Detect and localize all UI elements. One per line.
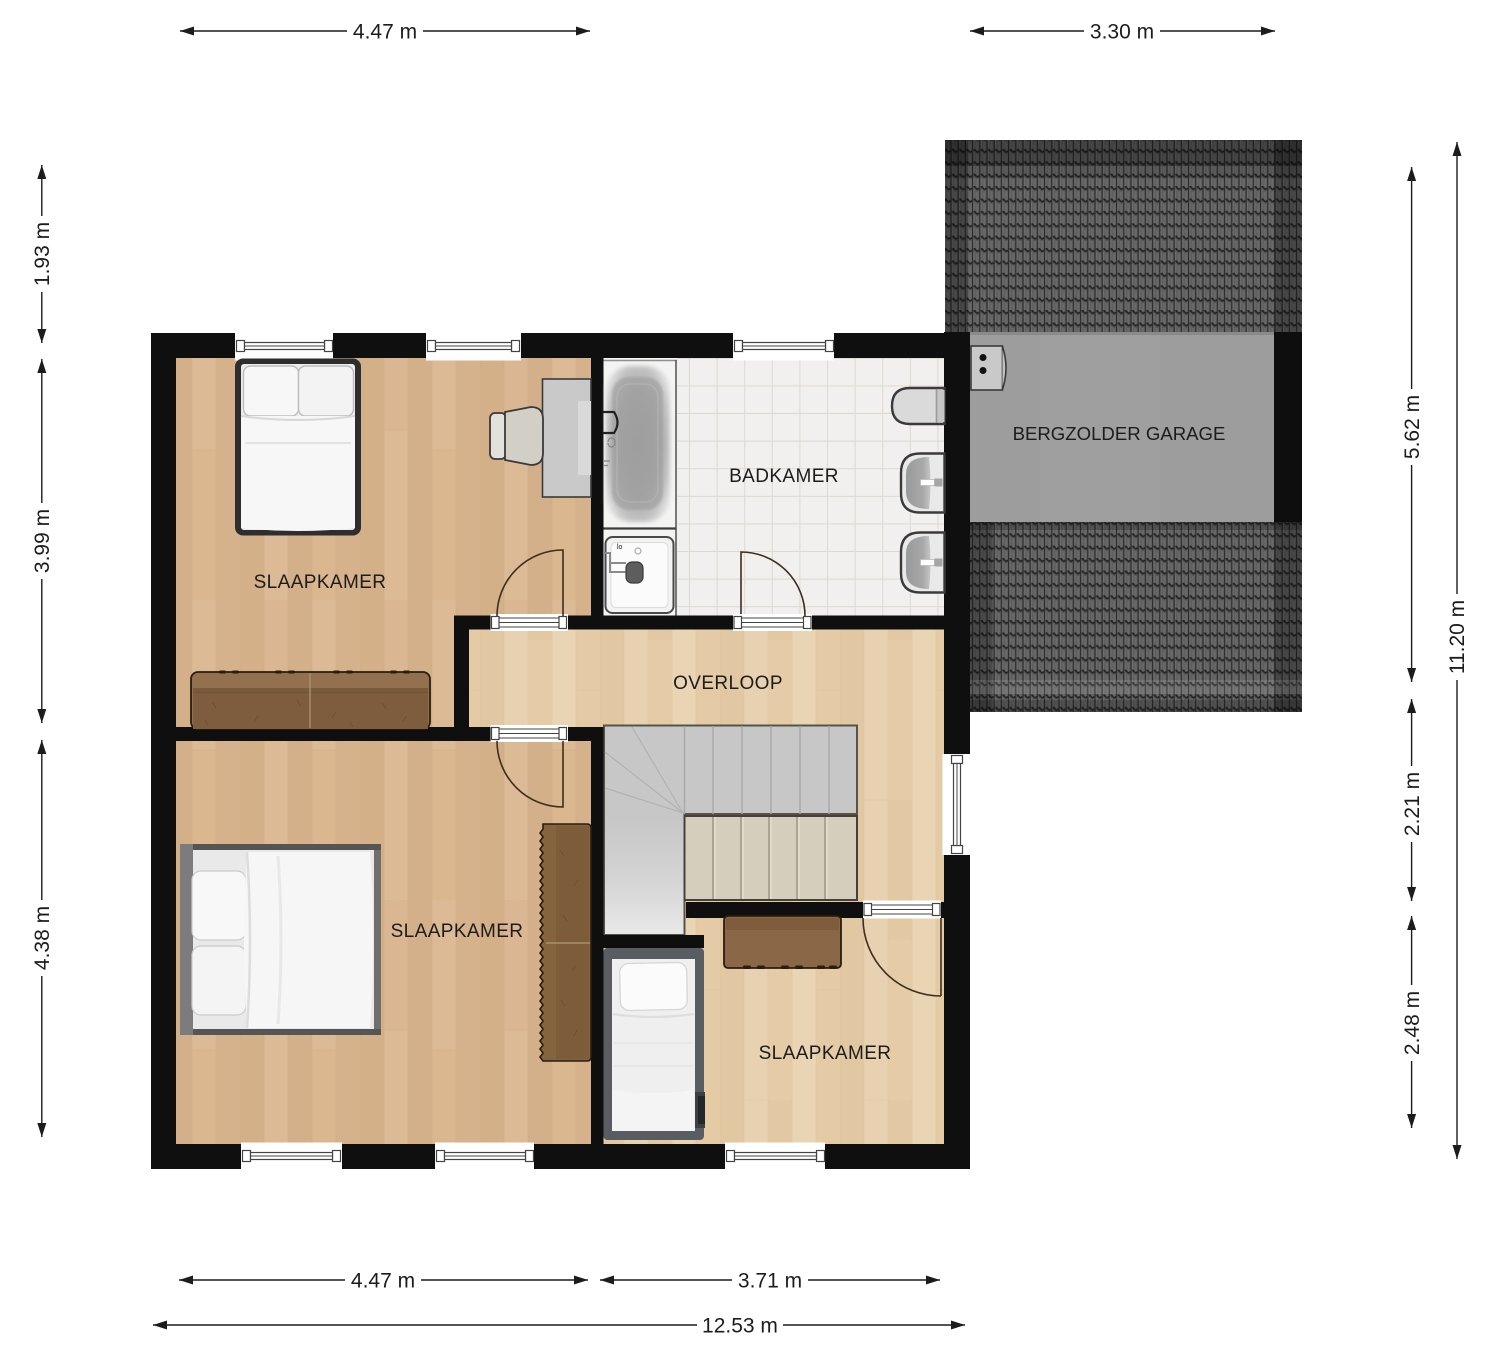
svg-text:3.99 m: 3.99 m bbox=[31, 509, 54, 573]
svg-text:BERGZOLDER GARAGE: BERGZOLDER GARAGE bbox=[1013, 423, 1226, 444]
svg-text:SLAAPKAMER: SLAAPKAMER bbox=[254, 572, 387, 593]
svg-text:4.47 m: 4.47 m bbox=[353, 21, 417, 44]
svg-text:4.47 m: 4.47 m bbox=[351, 1270, 415, 1293]
svg-text:3.30 m: 3.30 m bbox=[1090, 21, 1154, 44]
svg-text:SLAAPKAMER: SLAAPKAMER bbox=[391, 921, 524, 942]
svg-text:3.71 m: 3.71 m bbox=[738, 1270, 802, 1293]
svg-text:5.62 m: 5.62 m bbox=[1401, 395, 1424, 459]
svg-text:2.21 m: 2.21 m bbox=[1401, 772, 1424, 836]
svg-text:11.20 m: 11.20 m bbox=[1446, 600, 1469, 674]
svg-text:BADKAMER: BADKAMER bbox=[729, 466, 839, 487]
svg-text:1.93 m: 1.93 m bbox=[31, 222, 54, 286]
svg-text:lo: lo bbox=[617, 544, 623, 551]
svg-text:OVERLOOP: OVERLOOP bbox=[673, 673, 783, 694]
svg-text:2.48 m: 2.48 m bbox=[1401, 991, 1424, 1055]
svg-text:12.53 m: 12.53 m bbox=[702, 1315, 778, 1338]
svg-text:SLAAPKAMER: SLAAPKAMER bbox=[759, 1043, 892, 1064]
svg-text:4.38 m: 4.38 m bbox=[31, 906, 54, 970]
